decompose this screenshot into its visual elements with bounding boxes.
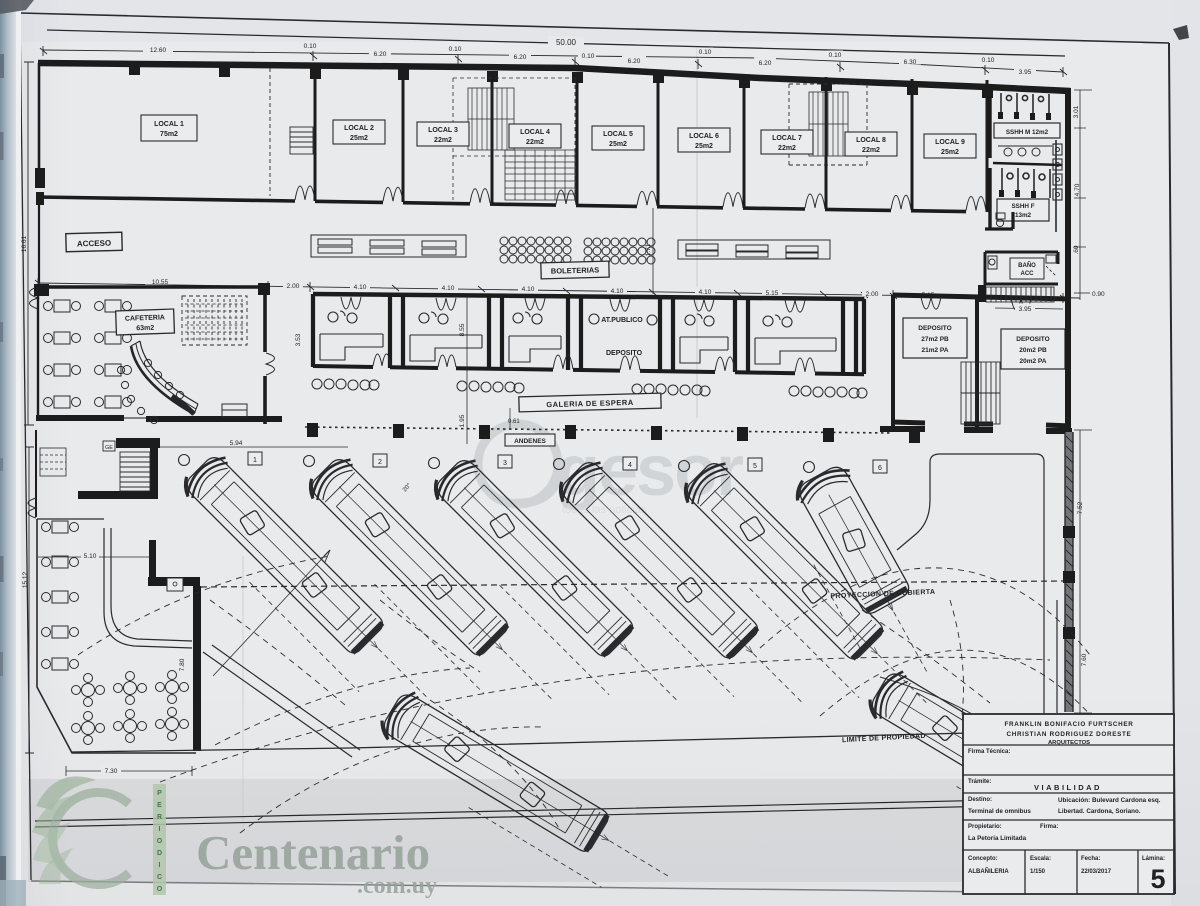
svg-text:P: P: [157, 790, 162, 797]
svg-text:Trámite:: Trámite:: [968, 779, 991, 785]
svg-text:ANDENES: ANDENES: [514, 438, 546, 445]
svg-text:2.00: 2.00: [866, 291, 879, 298]
svg-text:todas las noticias: todas las noticias: [562, 504, 647, 516]
svg-text:12.60: 12.60: [150, 47, 167, 54]
svg-text:Terminal de omnibus: Terminal de omnibus: [968, 808, 1031, 815]
svg-text:1.71: 1.71: [645, 243, 652, 256]
svg-text:0.90: 0.90: [1092, 291, 1105, 298]
svg-text:8.55: 8.55: [459, 323, 466, 336]
svg-text:VIABILIDAD: VIABILIDAD: [1034, 783, 1102, 792]
svg-text:R: R: [157, 814, 162, 821]
svg-text:LOCAL 1: LOCAL 1: [154, 121, 184, 128]
svg-text:7.52: 7.52: [1077, 501, 1084, 514]
svg-text:I: I: [159, 826, 161, 833]
svg-text:2.00: 2.00: [287, 283, 300, 290]
svg-text:22m2: 22m2: [526, 139, 544, 146]
svg-text:25m2: 25m2: [941, 149, 959, 156]
svg-text:SSHH M 12m2: SSHH M 12m2: [1006, 129, 1049, 136]
svg-text:22/03/2017: 22/03/2017: [1081, 869, 1112, 875]
svg-text:63m2: 63m2: [136, 325, 154, 333]
svg-text:21m2 PA: 21m2 PA: [922, 347, 949, 354]
svg-text:1.95: 1.95: [459, 414, 466, 427]
svg-text:AT.PUBLICO: AT.PUBLICO: [601, 317, 643, 324]
svg-text:BOLETERIAS: BOLETERIAS: [551, 265, 600, 275]
svg-text:CHRISTIAN RODRIGUEZ DORESTE: CHRISTIAN RODRIGUEZ DORESTE: [1007, 731, 1132, 738]
svg-text:75m2: 75m2: [160, 131, 178, 138]
svg-text:LOCAL 4: LOCAL 4: [520, 129, 550, 136]
svg-text:SSHH F: SSHH F: [1011, 203, 1034, 210]
svg-text:Destino:: Destino:: [968, 797, 992, 803]
svg-text:0.10: 0.10: [449, 46, 462, 53]
svg-text:FRANKLIN BONIFACIO FURTSCHER: FRANKLIN BONIFACIO FURTSCHER: [1004, 721, 1133, 728]
svg-text:7.30: 7.30: [105, 768, 118, 775]
svg-text:gesor: gesor: [556, 431, 743, 511]
svg-text:0.10: 0.10: [699, 49, 712, 56]
svg-text:27m2 PB: 27m2 PB: [921, 336, 949, 343]
svg-text:13m2: 13m2: [1015, 212, 1032, 219]
svg-text:4.10: 4.10: [611, 288, 624, 295]
svg-text:2: 2: [378, 459, 382, 466]
svg-text:5: 5: [1150, 864, 1165, 894]
svg-text:E: E: [157, 802, 162, 809]
svg-text:ARQUITECTOS: ARQUITECTOS: [1048, 740, 1090, 746]
svg-text:22m2: 22m2: [778, 145, 796, 152]
svg-text:1: 1: [253, 457, 257, 464]
svg-text:O: O: [157, 838, 163, 845]
svg-text:Firma Técnica:: Firma Técnica:: [968, 749, 1010, 755]
svg-text:LOCAL 9: LOCAL 9: [935, 139, 965, 146]
svg-text:Ubicación: Bulevard Cardona es: Ubicación: Bulevard Cardona esq.: [1058, 797, 1161, 804]
svg-text:LOCAL 5: LOCAL 5: [603, 131, 633, 138]
svg-text:22m2: 22m2: [434, 137, 452, 144]
svg-text:Concepto:: Concepto:: [968, 856, 998, 862]
svg-text:I: I: [159, 862, 161, 869]
svg-text:3.95: 3.95: [1019, 69, 1032, 76]
svg-text:0.10: 0.10: [982, 57, 995, 64]
svg-text:20m2 PB: 20m2 PB: [1019, 347, 1047, 354]
svg-text:0.10: 0.10: [582, 53, 595, 60]
svg-text:7.60: 7.60: [1081, 653, 1088, 666]
svg-text:25m2: 25m2: [695, 143, 713, 150]
svg-text:6.30: 6.30: [904, 59, 917, 66]
svg-text:ALBAÑILERIA: ALBAÑILERIA: [968, 868, 1009, 875]
svg-text:Libertad. Cardona, Soriano.: Libertad. Cardona, Soriano.: [1058, 808, 1141, 815]
svg-text:10.55: 10.55: [152, 279, 169, 286]
svg-text:4.10: 4.10: [354, 284, 367, 291]
svg-text:ACCESO: ACCESO: [77, 239, 111, 249]
svg-text:Centenario: Centenario: [196, 825, 430, 880]
svg-text:4.10: 4.10: [522, 286, 535, 293]
svg-text:.60: .60: [1073, 245, 1080, 254]
svg-text:6.20: 6.20: [759, 60, 772, 67]
svg-text:0.10: 0.10: [304, 43, 317, 50]
svg-text:4.10: 4.10: [442, 285, 455, 292]
svg-text:LOCAL 7: LOCAL 7: [772, 135, 802, 142]
svg-text:DEPOSITO: DEPOSITO: [1016, 336, 1049, 343]
svg-text:6.20: 6.20: [514, 54, 527, 61]
svg-text:4: 4: [628, 462, 632, 469]
svg-text:LOCAL 6: LOCAL 6: [689, 133, 719, 140]
svg-text:6: 6: [878, 465, 882, 472]
svg-text:Propietario:: Propietario:: [968, 824, 1002, 830]
svg-text:BAÑO: BAÑO: [1018, 262, 1036, 269]
svg-text:O: O: [157, 886, 163, 893]
svg-text:0.10: 0.10: [829, 52, 842, 59]
svg-text:22m2: 22m2: [862, 147, 880, 154]
svg-text:6.20: 6.20: [628, 58, 641, 65]
svg-text:LOCAL 3: LOCAL 3: [428, 127, 458, 134]
svg-text:3.95: 3.95: [1019, 306, 1032, 313]
svg-text:4.10: 4.10: [699, 289, 712, 296]
svg-text:3.53: 3.53: [295, 333, 302, 346]
svg-text:15.12: 15.12: [22, 571, 29, 588]
svg-text:5.94: 5.94: [230, 440, 243, 447]
svg-text:50.00: 50.00: [556, 38, 577, 47]
svg-text:Firma:: Firma:: [1040, 824, 1058, 830]
svg-text:Fecha:: Fecha:: [1081, 856, 1100, 862]
svg-text:C: C: [157, 874, 162, 881]
svg-text:La Petoria Limitada: La Petoria Limitada: [968, 835, 1027, 842]
svg-text:D: D: [157, 850, 162, 857]
svg-text:ACC: ACC: [1021, 271, 1035, 277]
svg-text:CAFETERIA: CAFETERIA: [125, 314, 165, 322]
svg-text:DEPOSITO: DEPOSITO: [918, 325, 951, 332]
svg-text:LOCAL 2: LOCAL 2: [344, 125, 374, 132]
svg-text:7.80: 7.80: [179, 658, 186, 671]
svg-text:DEPOSITO: DEPOSITO: [606, 350, 643, 357]
svg-text:16.61: 16.61: [21, 235, 28, 252]
svg-text:.com.uy: .com.uy: [357, 873, 437, 899]
svg-text:3: 3: [503, 460, 507, 467]
svg-text:25m2: 25m2: [350, 135, 368, 142]
svg-text:5: 5: [753, 463, 757, 470]
svg-text:4.70: 4.70: [1074, 183, 1081, 196]
svg-text:1/150: 1/150: [1030, 869, 1046, 875]
svg-text:6.20: 6.20: [374, 51, 387, 58]
svg-text:Escala:: Escala:: [1030, 856, 1051, 862]
svg-text:LOCAL 8: LOCAL 8: [856, 137, 886, 144]
svg-text:Lámina:: Lámina:: [1142, 856, 1165, 862]
svg-text:25m2: 25m2: [609, 141, 627, 148]
svg-text:5.10: 5.10: [84, 553, 97, 560]
svg-text:GE: GE: [105, 445, 113, 451]
svg-text:20m2 PA: 20m2 PA: [1020, 358, 1047, 365]
svg-text:3.01: 3.01: [1073, 105, 1080, 118]
